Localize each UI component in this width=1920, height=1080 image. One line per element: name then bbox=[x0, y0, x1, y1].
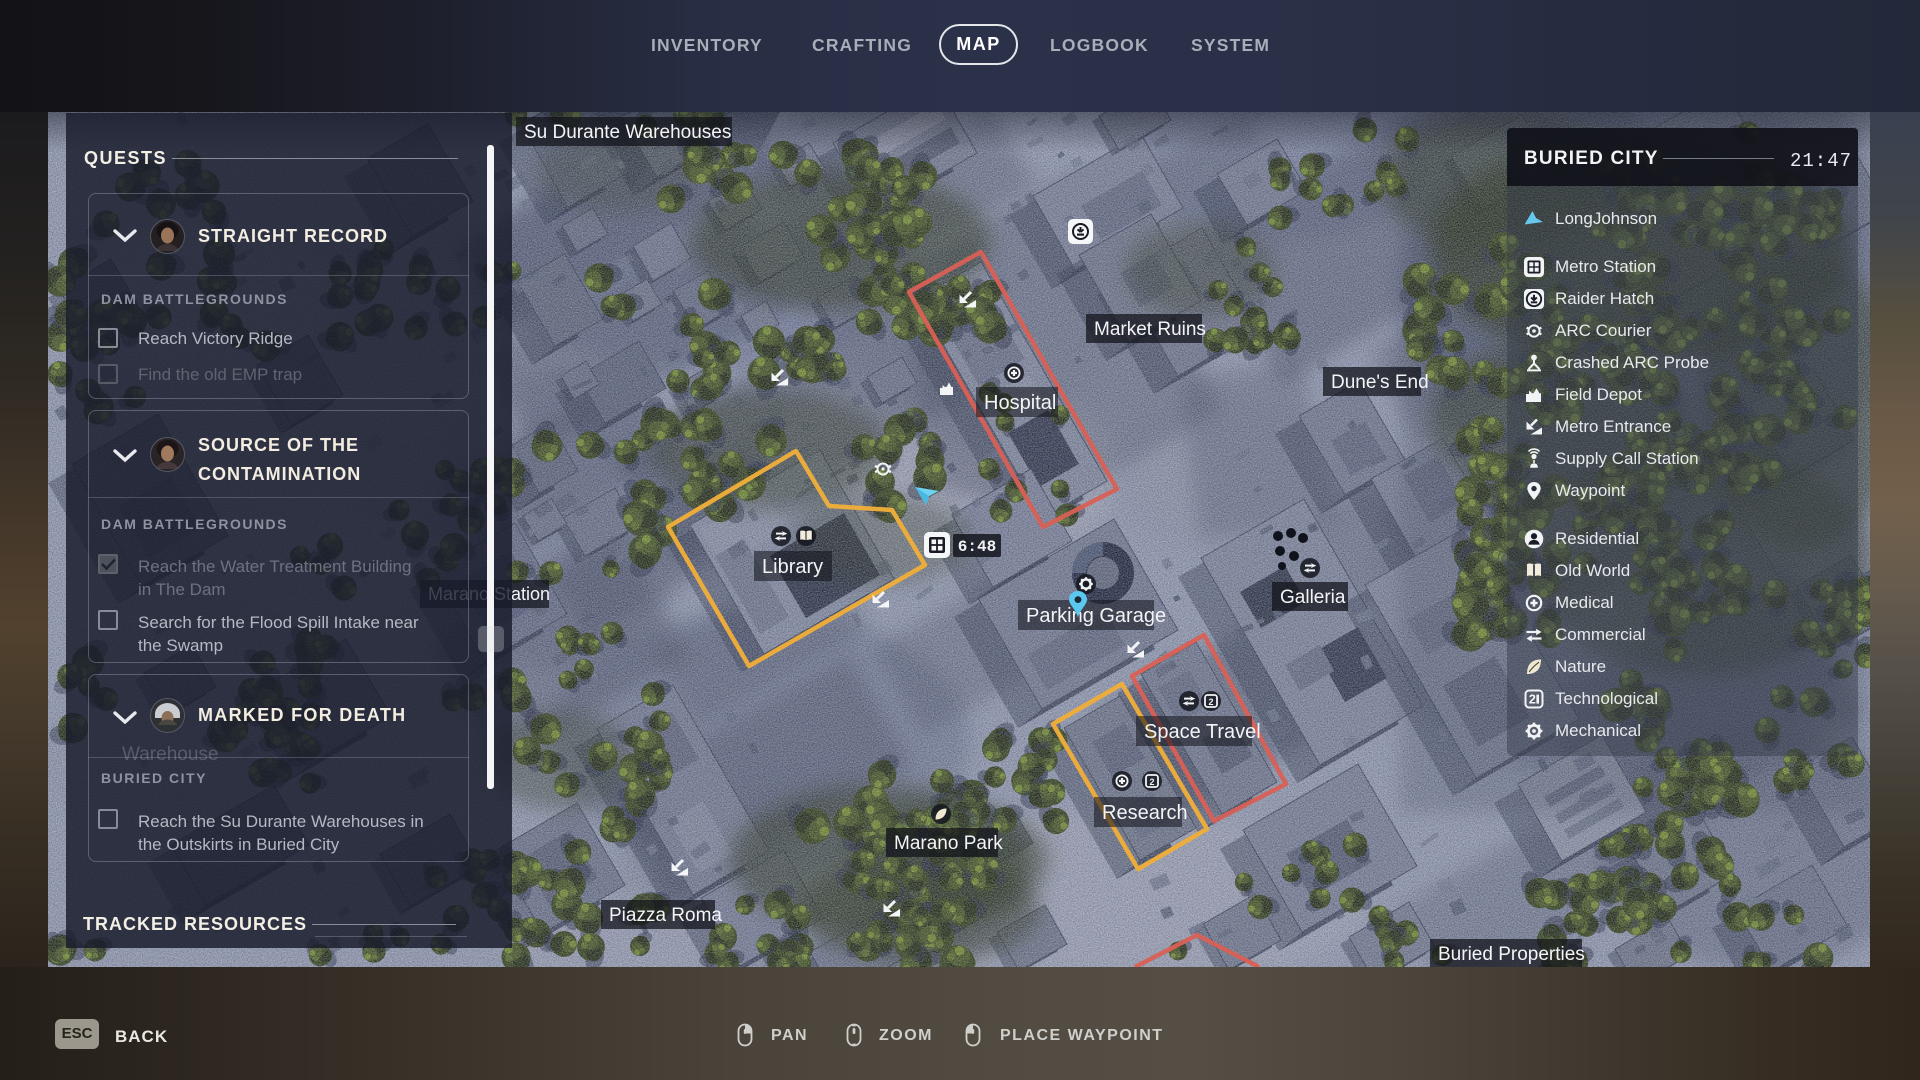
svg-text:Dune's End: Dune's End bbox=[1331, 372, 1429, 393]
svg-text:Space Travel: Space Travel bbox=[1144, 721, 1261, 743]
svg-text:Marano Park: Marano Park bbox=[894, 833, 1003, 854]
svg-text:Piazza Roma: Piazza Roma bbox=[609, 905, 722, 926]
svg-text:Parking Garage: Parking Garage bbox=[1026, 605, 1166, 627]
svg-text:2: 2 bbox=[1208, 697, 1213, 707]
svg-text:Library: Library bbox=[762, 556, 823, 578]
svg-text:2: 2 bbox=[1529, 693, 1536, 707]
svg-text:Research: Research bbox=[1102, 802, 1188, 824]
svg-text:Buried Properties: Buried Properties bbox=[1438, 944, 1585, 965]
svg-text:Hospital: Hospital bbox=[984, 392, 1056, 414]
svg-text:2: 2 bbox=[1149, 777, 1154, 787]
svg-text:Su Durante Warehouses: Su Durante Warehouses bbox=[524, 122, 731, 143]
svg-text:Market Ruins: Market Ruins bbox=[1094, 319, 1206, 340]
svg-text:6:48: 6:48 bbox=[958, 538, 996, 556]
svg-text:Galleria: Galleria bbox=[1280, 587, 1346, 608]
